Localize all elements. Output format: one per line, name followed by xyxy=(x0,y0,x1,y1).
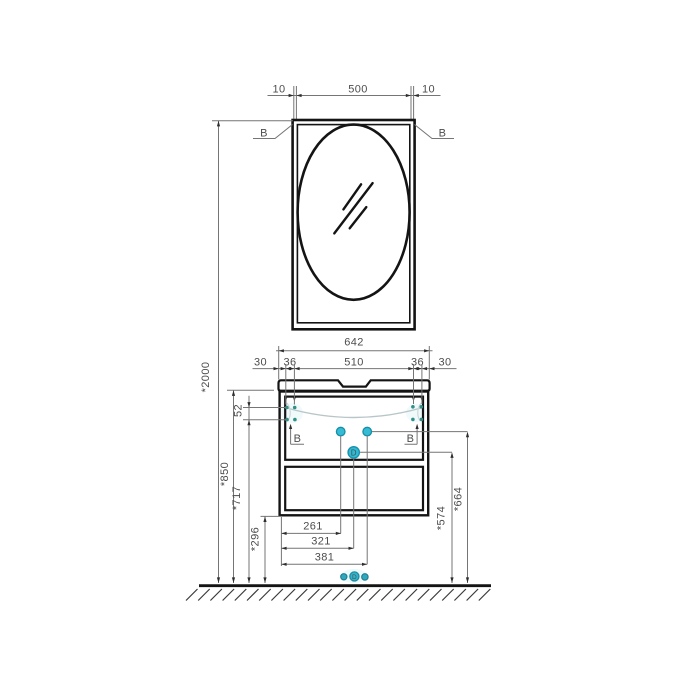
svg-text:B: B xyxy=(407,433,415,445)
svg-text:*664: *664 xyxy=(453,487,465,511)
svg-text:52: 52 xyxy=(233,404,245,417)
svg-text:30: 30 xyxy=(254,357,267,369)
svg-text:500: 500 xyxy=(348,84,368,96)
svg-text:321: 321 xyxy=(311,536,331,548)
svg-text:B: B xyxy=(260,128,268,140)
svg-text:510: 510 xyxy=(344,357,364,369)
svg-text:10: 10 xyxy=(272,84,285,96)
svg-text:381: 381 xyxy=(315,552,335,564)
svg-text:642: 642 xyxy=(344,337,364,349)
svg-text:261: 261 xyxy=(303,521,323,533)
svg-text:10: 10 xyxy=(422,84,435,96)
svg-text:D: D xyxy=(351,448,357,457)
svg-text:30: 30 xyxy=(438,357,451,369)
svg-text:D: D xyxy=(352,574,357,581)
svg-text:B: B xyxy=(294,433,302,445)
svg-text:*2000: *2000 xyxy=(200,362,212,393)
svg-text:*296: *296 xyxy=(250,527,262,551)
svg-text:*574: *574 xyxy=(436,506,448,530)
svg-text:*850: *850 xyxy=(219,462,231,486)
svg-text:B: B xyxy=(439,128,447,140)
svg-text:*717: *717 xyxy=(231,486,243,510)
